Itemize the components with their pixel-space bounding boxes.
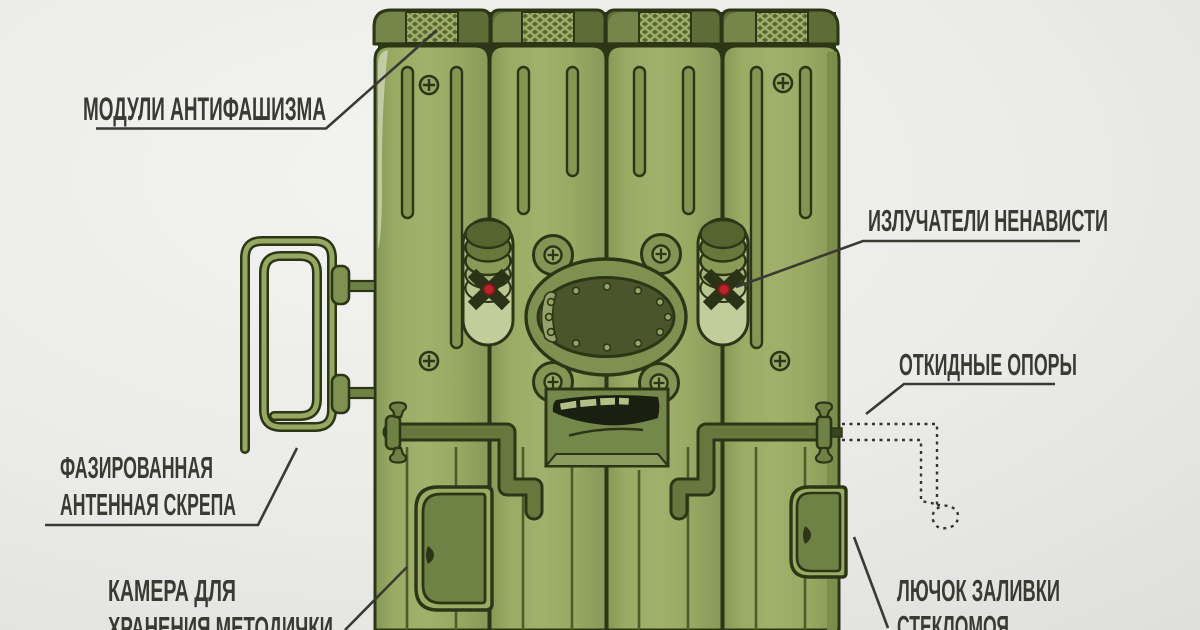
svg-text:ЛЮЧОК ЗАЛИВКИ: ЛЮЧОК ЗАЛИВКИ xyxy=(897,573,1060,608)
svg-text:АНТЕННАЯ СКРЕПА: АНТЕННАЯ СКРЕПА xyxy=(60,487,236,522)
svg-text:ОТКИДНЫЕ ОПОРЫ: ОТКИДНЫЕ ОПОРЫ xyxy=(899,347,1077,382)
svg-text:ФАЗИРОВАННАЯ: ФАЗИРОВАННАЯ xyxy=(60,450,213,485)
svg-text:МОДУЛИ АНТИФАШИЗМА: МОДУЛИ АНТИФАШИЗМА xyxy=(83,91,326,127)
svg-text:ХРАНЕНИЯ МЕТОДИЧКИ: ХРАНЕНИЯ МЕТОДИЧКИ xyxy=(108,610,333,630)
svg-text:ИЗЛУЧАТЕЛИ НЕНАВИСТИ: ИЗЛУЧАТЕЛИ НЕНАВИСТИ xyxy=(868,203,1108,238)
svg-text:СТЕКЛОМОЯ: СТЕКЛОМОЯ xyxy=(897,609,1009,630)
svg-text:КАМЕРА ДЛЯ: КАМЕРА ДЛЯ xyxy=(108,573,236,608)
